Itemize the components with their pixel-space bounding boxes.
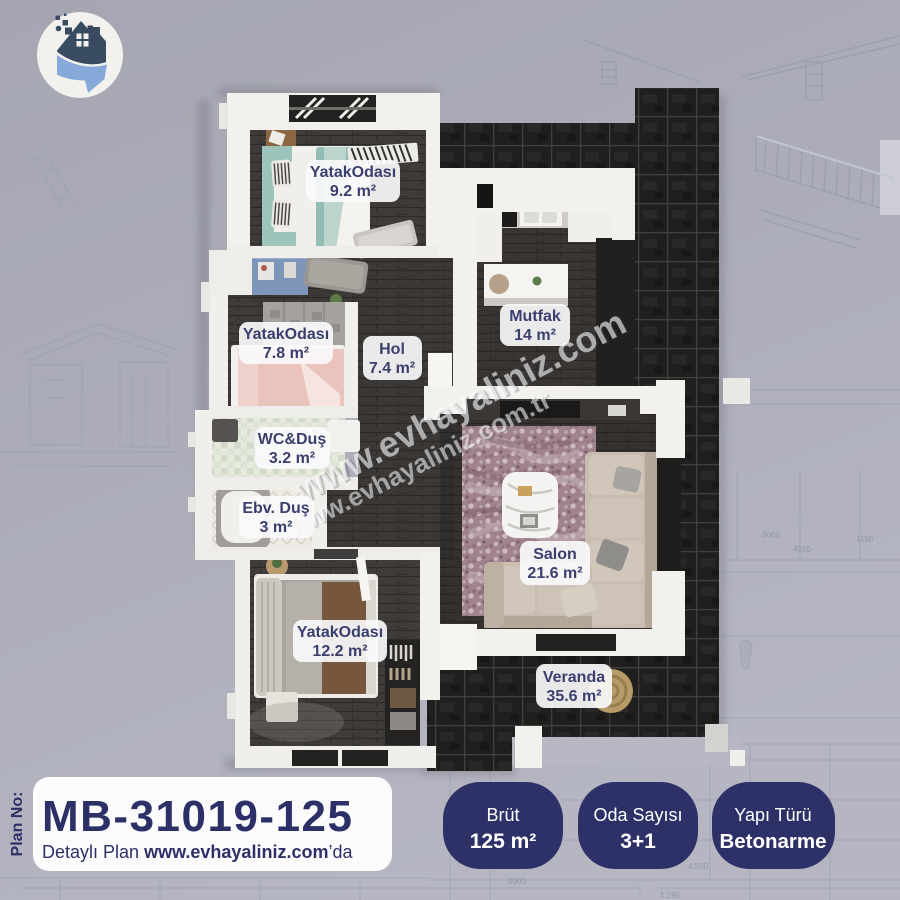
svg-text:3+1: 3+1 [620,830,656,853]
svg-text:Hol: Hol [379,341,405,358]
svg-text:3.2 m²: 3.2 m² [269,450,315,467]
svg-text:3 m²: 3 m² [260,519,293,536]
svg-text:Detaylı Plan www.evhayaliniz.c: Detaylı Plan www.evhayaliniz.com’da [42,842,353,862]
svg-text:9.2 m²: 9.2 m² [330,183,376,200]
svg-text:7.4 m²: 7.4 m² [369,360,415,377]
svg-text:Veranda: Veranda [543,669,605,686]
svg-text:Plan No:: Plan No: [9,792,26,857]
svg-text:7.8 m²: 7.8 m² [263,345,309,362]
svg-text:Ebv. Duş: Ebv. Duş [242,500,309,517]
svg-text:Oda Sayısı: Oda Sayısı [593,805,682,825]
svg-text:21.6 m²: 21.6 m² [527,565,582,582]
svg-text:Salon: Salon [533,546,577,563]
svg-text:YatakOdası: YatakOdası [297,624,383,641]
svg-text:WC&Duş: WC&Duş [258,431,327,448]
svg-text:14 m²: 14 m² [514,327,556,344]
svg-text:Brüt: Brüt [486,805,519,825]
svg-text:125 m²: 125 m² [470,830,537,853]
svg-text:35.6 m²: 35.6 m² [546,688,601,705]
svg-text:YatakOdası: YatakOdası [243,326,329,343]
svg-text:YatakOdası: YatakOdası [310,164,396,181]
svg-text:1.195: 1.195 [660,891,681,900]
svg-text:1150: 1150 [856,534,874,544]
svg-text:4.500: 4.500 [688,862,709,871]
svg-text:0000: 0000 [508,877,526,886]
svg-text:MB-31019-125: MB-31019-125 [42,792,354,841]
svg-text:Betonarme: Betonarme [719,830,826,853]
svg-text:4150: 4150 [793,544,812,554]
svg-text:3000: 3000 [762,530,781,540]
svg-text:Yapı Türü: Yapı Türü [734,805,811,825]
svg-text:12.2 m²: 12.2 m² [312,643,367,660]
svg-text:Mutfak: Mutfak [509,308,561,325]
